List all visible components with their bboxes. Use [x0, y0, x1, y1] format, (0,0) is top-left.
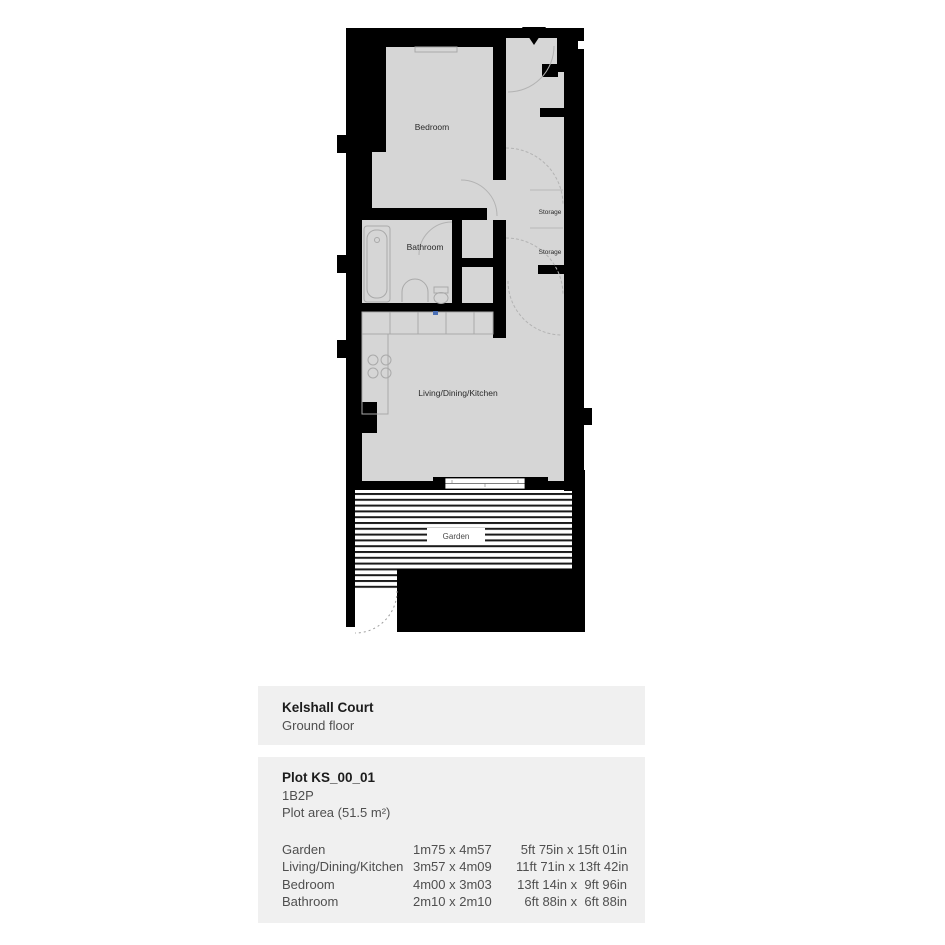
dim-imperial: 5ft 75in x 15ft 01in — [516, 841, 627, 859]
dim-imperial: 13ft 14in x 9ft 96in — [516, 876, 627, 894]
dim-room: Bedroom — [282, 876, 413, 894]
dim-room: Living/Dining/Kitchen — [282, 858, 413, 876]
storage-label-2: Storage — [539, 249, 562, 256]
bedroom-label: Bedroom — [415, 122, 450, 132]
dim-imperial: 11ft 71in x 13ft 42in — [516, 858, 629, 876]
dim-imperial: 6ft 88in x 6ft 88in — [516, 893, 627, 911]
plot-area: Plot area (51.5 m²) — [282, 804, 627, 822]
floor-plan: Bedroom Bathroom Living/Dining/Kitchen S… — [0, 0, 945, 660]
building-floor: Ground floor — [282, 717, 627, 735]
dimensions-table: Garden 1m75 x 4m57 5ft 75in x 15ft 01in … — [282, 841, 627, 911]
dim-metric: 4m00 x 3m03 — [413, 876, 516, 894]
floorplan-page: Bedroom Bathroom Living/Dining/Kitchen S… — [0, 0, 945, 945]
bathroom-area — [362, 220, 452, 303]
dim-room: Garden — [282, 841, 413, 859]
table-row: Bathroom 2m10 x 2m10 6ft 88in x 6ft 88in — [282, 893, 627, 911]
living-label: Living/Dining/Kitchen — [418, 388, 498, 398]
patio-door — [433, 477, 548, 489]
building-name: Kelshall Court — [282, 699, 627, 717]
plot-type: 1B2P — [282, 787, 627, 805]
plot-id: Plot KS_00_01 — [282, 769, 627, 787]
dim-room: Bathroom — [282, 893, 413, 911]
table-row: Bedroom 4m00 x 3m03 13ft 14in x 9ft 96in — [282, 876, 627, 894]
plot-info-panel: Plot KS_00_01 1B2P Plot area (51.5 m²) G… — [258, 757, 645, 923]
dim-metric: 2m10 x 2m10 — [413, 893, 516, 911]
dim-metric: 1m75 x 4m57 — [413, 841, 516, 859]
storage-label-1: Storage — [539, 209, 562, 216]
table-row: Garden 1m75 x 4m57 5ft 75in x 15ft 01in — [282, 841, 627, 859]
building-info-panel: Kelshall Court Ground floor — [258, 686, 645, 745]
table-row: Living/Dining/Kitchen 3m57 x 4m09 11ft 7… — [282, 858, 627, 876]
sink-tap — [433, 311, 438, 315]
gate-swing-arc — [355, 591, 397, 633]
bathroom-label: Bathroom — [407, 242, 444, 252]
dim-metric: 3m57 x 4m09 — [413, 858, 516, 876]
garden-label: Garden — [443, 532, 470, 541]
